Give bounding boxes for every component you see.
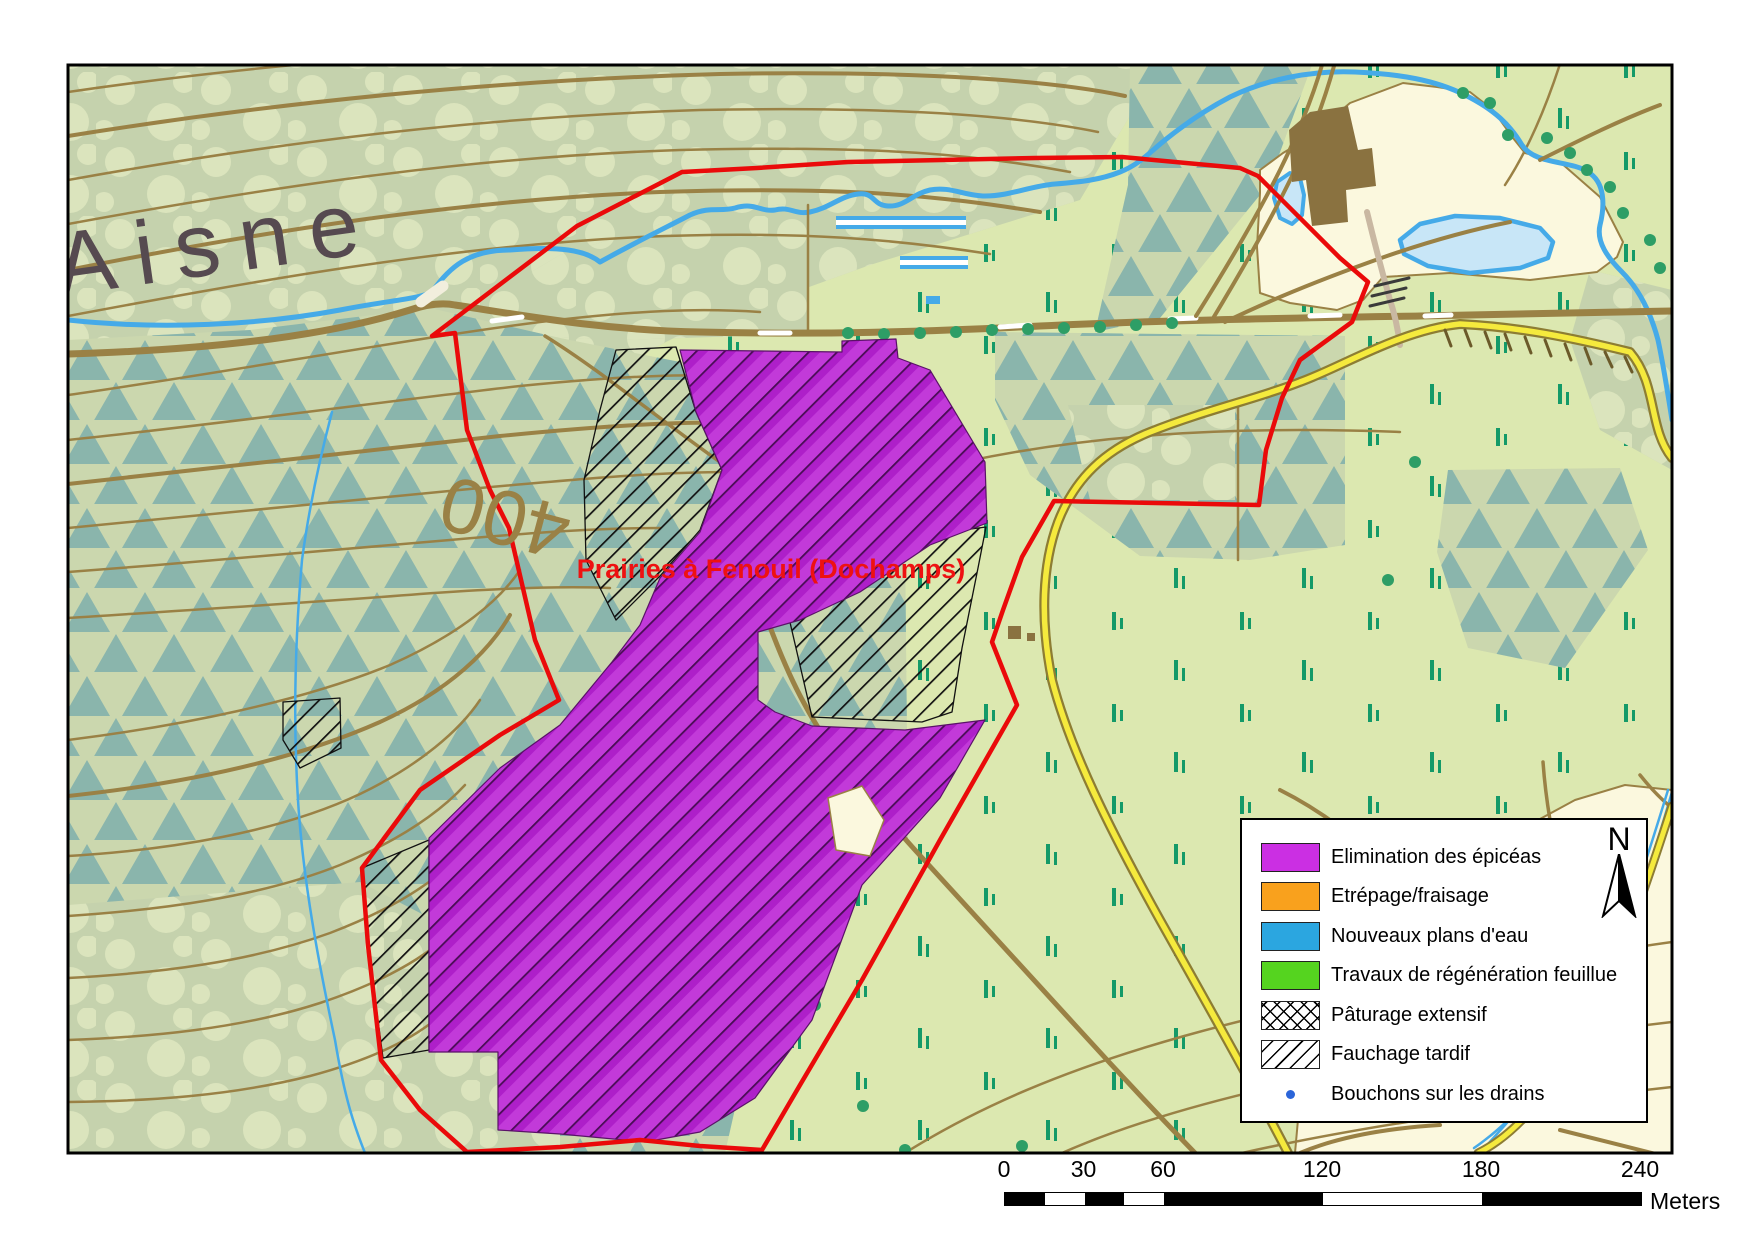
trees-roadside-dot xyxy=(986,324,998,336)
trees-roadside-dot xyxy=(1130,319,1142,331)
legend-box: Elimination des épicéasEtrépage/fraisage… xyxy=(1240,818,1648,1123)
legend-item-label: Pâturage extensif xyxy=(1331,1004,1487,1027)
building-small-2 xyxy=(1027,633,1035,641)
legend-swatch-color xyxy=(1261,961,1320,990)
scale-tick-label: 0 xyxy=(998,1156,1011,1183)
drain-mark-top-1 xyxy=(836,216,966,220)
trees-village-stream-dot xyxy=(1484,97,1496,109)
legend-item: Travaux de régénération feuillue xyxy=(1242,959,1617,993)
map-page: Aisne400Prairies à Fenouil (Dochamps) El… xyxy=(0,0,1753,1241)
drain-mark-bot-1 xyxy=(836,225,966,229)
scale-tick-label: 240 xyxy=(1621,1156,1659,1183)
trees-roadside-dot xyxy=(950,326,962,338)
drain-mark-3 xyxy=(926,296,940,304)
legend-item: Nouveaux plans d'eau xyxy=(1242,919,1528,953)
legend-item: Fauchage tardif xyxy=(1242,1038,1470,1072)
trees-roadside-dot xyxy=(1022,323,1034,335)
legend-item: Pâturage extensif xyxy=(1242,998,1487,1032)
scale-segment xyxy=(1085,1193,1125,1205)
scale-tick-label: 30 xyxy=(1071,1156,1097,1183)
legend-swatch-color xyxy=(1261,922,1320,951)
scale-tick-label: 180 xyxy=(1462,1156,1500,1183)
legend-item-label: Fauchage tardif xyxy=(1331,1043,1470,1066)
scale-tick-label: 120 xyxy=(1303,1156,1341,1183)
drain-mark-top-2 xyxy=(900,256,968,260)
legend-swatch-dot xyxy=(1261,1090,1320,1099)
trees-village-stream-dot xyxy=(1502,129,1514,141)
legend-item-label: Etrépage/fraisage xyxy=(1331,885,1489,908)
legend-swatch-color xyxy=(1261,882,1320,911)
trees-village-stream-dot xyxy=(1617,207,1629,219)
drain-mark-bot-2 xyxy=(900,265,968,269)
trees-roadside-dot xyxy=(1166,317,1178,329)
site-label: Prairies à Fenouil (Dochamps) xyxy=(577,554,966,584)
scale-bar-unit: Meters xyxy=(1650,1188,1720,1215)
trees-village-stream-dot xyxy=(1654,262,1666,274)
deciduous-patch-center-dots xyxy=(1068,405,1235,500)
trees-village-stream-dot xyxy=(1457,87,1469,99)
trees-village-stream-dot xyxy=(1581,164,1593,176)
scale-segment xyxy=(1045,1193,1085,1205)
legend-item-label: Travaux de régénération feuillue xyxy=(1331,964,1617,987)
legend-item-label: Bouchons sur les drains xyxy=(1331,1083,1544,1106)
legend-item-label: Nouveaux plans d'eau xyxy=(1331,925,1528,948)
legend-swatch-cross xyxy=(1261,1001,1320,1030)
north-label: N xyxy=(1594,824,1644,854)
scale-segment xyxy=(1164,1193,1323,1205)
building-small-1 xyxy=(1008,626,1021,639)
scale-segment xyxy=(1005,1193,1045,1205)
trees-bottom-dot xyxy=(857,1100,869,1112)
north-arrow-icon xyxy=(1599,854,1639,918)
legend-item: Elimination des épicéas xyxy=(1242,840,1541,874)
trees-village-stream-dot xyxy=(1541,132,1553,144)
trees-roadside-dot xyxy=(878,328,890,340)
legend-swatch-diag xyxy=(1261,1040,1320,1069)
trees-roadside-dot xyxy=(1058,322,1070,334)
trees-village-stream-dot xyxy=(1409,456,1421,468)
trees-village-stream-dot xyxy=(1382,574,1394,586)
scale-segment xyxy=(1323,1193,1482,1205)
trees-roadside-dot xyxy=(842,327,854,339)
scale-bar-segments xyxy=(1004,1192,1642,1206)
legend-dot-symbol xyxy=(1286,1090,1295,1099)
trees-roadside-dot xyxy=(914,327,926,339)
scale-segment xyxy=(1482,1193,1641,1205)
scale-segment xyxy=(1124,1193,1164,1205)
scale-tick-label: 60 xyxy=(1150,1156,1176,1183)
scale-bar: 03060120180240 Meters xyxy=(1004,1156,1749,1216)
legend-item: Bouchons sur les drains xyxy=(1242,1077,1544,1111)
north-indicator: N xyxy=(1594,824,1644,923)
trees-bottom-dot xyxy=(1016,1140,1028,1152)
legend-swatch-color xyxy=(1261,843,1320,872)
trees-village-stream-dot xyxy=(1644,234,1656,246)
legend-item: Etrépage/fraisage xyxy=(1242,880,1489,914)
trees-village-stream-dot xyxy=(1604,181,1616,193)
trees-village-stream-dot xyxy=(1564,147,1576,159)
trees-roadside-dot xyxy=(1094,321,1106,333)
legend-item-label: Elimination des épicéas xyxy=(1331,846,1541,869)
